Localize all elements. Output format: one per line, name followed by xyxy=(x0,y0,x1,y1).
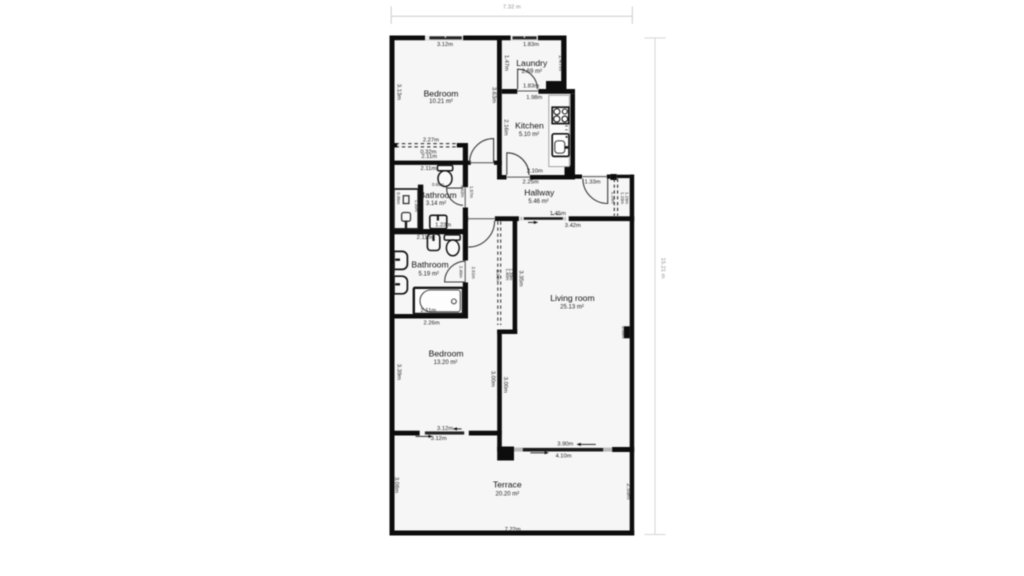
svg-text:3.00m: 3.00m xyxy=(489,371,495,387)
svg-text:2.11m: 2.11m xyxy=(421,166,437,172)
svg-text:7.22m: 7.22m xyxy=(505,527,521,533)
svg-text:2.16m: 2.16m xyxy=(502,119,508,135)
svg-text:25.13 m²: 25.13 m² xyxy=(560,305,584,311)
svg-text:1.47m: 1.47m xyxy=(557,55,563,71)
svg-text:1.15m: 1.15m xyxy=(620,192,625,204)
svg-text:15.21 m: 15.21 m xyxy=(660,258,666,279)
svg-text:3.12m: 3.12m xyxy=(437,42,453,48)
svg-text:Laundry: Laundry xyxy=(516,58,548,68)
svg-text:3.12m: 3.12m xyxy=(431,436,447,442)
svg-text:Hallway: Hallway xyxy=(524,188,555,198)
svg-text:1.16m: 1.16m xyxy=(610,192,615,204)
svg-text:2.27m: 2.27m xyxy=(423,138,439,144)
svg-text:3.12m: 3.12m xyxy=(437,426,453,432)
svg-text:Bathroom: Bathroom xyxy=(419,190,456,200)
svg-text:Bedroom: Bedroom xyxy=(424,88,459,98)
svg-text:5.19 m²: 5.19 m² xyxy=(419,271,439,277)
svg-text:0.50m: 0.50m xyxy=(391,265,396,277)
svg-text:10.21 m²: 10.21 m² xyxy=(429,99,453,105)
svg-text:4.10m: 4.10m xyxy=(555,453,571,459)
svg-text:3.39m: 3.39m xyxy=(395,364,401,380)
svg-text:2.61m: 2.61m xyxy=(471,267,476,279)
svg-text:2.25m: 2.25m xyxy=(523,179,539,185)
svg-text:3.90m: 3.90m xyxy=(557,441,573,447)
svg-text:0.96m: 0.96m xyxy=(396,192,401,204)
svg-text:1.39m: 1.39m xyxy=(508,268,513,280)
svg-text:1.57m: 1.57m xyxy=(469,186,474,198)
svg-text:7.32 m: 7.32 m xyxy=(503,4,521,10)
svg-text:2.59m: 2.59m xyxy=(625,483,631,499)
svg-text:2.26m: 2.26m xyxy=(424,320,440,326)
svg-text:3.42m: 3.42m xyxy=(565,223,581,229)
svg-text:2.46m: 2.46m xyxy=(459,266,464,278)
svg-text:Terrace: Terrace xyxy=(493,480,522,490)
svg-text:1.83m: 1.83m xyxy=(523,42,539,48)
svg-text:3.14 m²: 3.14 m² xyxy=(426,201,446,207)
svg-text:20.20 m²: 20.20 m² xyxy=(496,491,520,497)
svg-text:1.35m: 1.35m xyxy=(414,200,419,212)
svg-text:3.08m: 3.08m xyxy=(393,477,399,493)
svg-text:1.45m: 1.45m xyxy=(550,211,566,217)
svg-text:3.63m: 3.63m xyxy=(491,87,497,103)
svg-text:2.11m: 2.11m xyxy=(417,235,433,241)
svg-text:1.47m: 1.47m xyxy=(503,55,509,71)
svg-text:3.13m: 3.13m xyxy=(395,84,401,100)
svg-text:0.68m: 0.68m xyxy=(621,326,626,338)
svg-text:3.35m: 3.35m xyxy=(517,270,523,286)
svg-text:1.16m: 1.16m xyxy=(624,192,629,204)
svg-text:1.23m: 1.23m xyxy=(435,222,451,228)
svg-text:Kitchen: Kitchen xyxy=(515,121,544,131)
svg-text:3.00m: 3.00m xyxy=(502,377,508,393)
svg-text:2.10m: 2.10m xyxy=(527,169,543,175)
svg-text:1.98m: 1.98m xyxy=(526,95,542,101)
svg-text:5.10 m²: 5.10 m² xyxy=(519,132,539,138)
svg-text:Bathroom: Bathroom xyxy=(411,259,448,269)
svg-text:2.11m: 2.11m xyxy=(421,154,437,160)
svg-text:Living room: Living room xyxy=(550,293,594,303)
svg-text:2.69 m²: 2.69 m² xyxy=(522,69,542,75)
svg-text:0.60m: 0.60m xyxy=(432,182,444,187)
svg-text:2.11m: 2.11m xyxy=(420,308,436,314)
svg-text:1.83m: 1.83m xyxy=(523,84,539,90)
svg-text:13.20 m²: 13.20 m² xyxy=(434,360,458,366)
svg-text:3.34m: 3.34m xyxy=(495,269,500,281)
svg-text:1.33m: 1.33m xyxy=(584,179,600,185)
svg-text:0.63m: 0.63m xyxy=(460,185,465,197)
svg-text:5.46 m²: 5.46 m² xyxy=(528,199,548,205)
svg-text:Bedroom: Bedroom xyxy=(429,348,464,358)
